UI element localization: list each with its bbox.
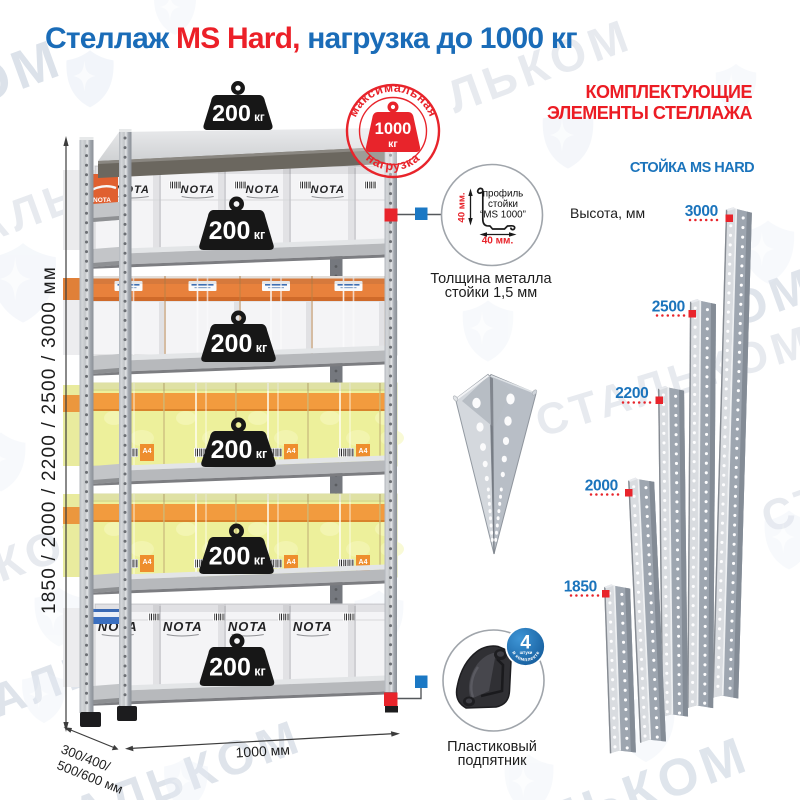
svg-text:кг: кг — [254, 228, 265, 242]
svg-text:стойки: стойки — [488, 199, 518, 210]
svg-text:2200: 2200 — [615, 385, 648, 402]
svg-text:A4: A4 — [143, 448, 152, 455]
svg-text:“MS 1000”: “MS 1000” — [480, 210, 526, 221]
svg-text:40 мм.: 40 мм. — [457, 192, 468, 222]
svg-text:1000: 1000 — [375, 120, 412, 138]
svg-text:кг: кг — [256, 341, 267, 355]
svg-text:A4: A4 — [143, 559, 152, 566]
svg-text:кг: кг — [254, 554, 265, 568]
svg-text:профиль: профиль — [483, 189, 524, 200]
svg-text:200: 200 — [211, 330, 253, 358]
svg-text:A4: A4 — [359, 448, 368, 455]
svg-text:штуки: штуки — [520, 650, 533, 655]
svg-text:40 мм.: 40 мм. — [482, 236, 514, 247]
svg-text:200: 200 — [212, 100, 251, 126]
svg-text:кг: кг — [388, 138, 398, 150]
svg-text:1850 / 2000 / 2200 / 2500 / 30: 1850 / 2000 / 2200 / 2500 / 3000 мм — [39, 266, 60, 614]
svg-text:1850: 1850 — [564, 579, 597, 596]
svg-text:200: 200 — [209, 217, 251, 245]
svg-text:кг: кг — [254, 111, 265, 124]
svg-text:A4: A4 — [359, 559, 368, 566]
svg-text:200: 200 — [209, 654, 251, 682]
svg-text:NOTA: NOTA — [246, 184, 280, 196]
svg-text:200: 200 — [211, 436, 253, 464]
svg-text:200: 200 — [209, 543, 251, 571]
svg-text:1000 мм: 1000 мм — [235, 742, 290, 761]
svg-text:NOTA: NOTA — [311, 184, 345, 196]
svg-text:2500: 2500 — [652, 299, 685, 316]
svg-text:NOTA: NOTA — [228, 619, 268, 634]
svg-text:NOTA: NOTA — [293, 619, 333, 634]
svg-text:NOTA: NOTA — [163, 619, 203, 634]
svg-text:3000: 3000 — [685, 203, 718, 220]
svg-text:кг: кг — [256, 447, 267, 461]
svg-text:A4: A4 — [287, 559, 296, 566]
svg-text:A4: A4 — [287, 448, 296, 455]
svg-text:2000: 2000 — [585, 478, 618, 495]
svg-text:NOTA: NOTA — [181, 184, 215, 196]
svg-text:кг: кг — [254, 665, 265, 679]
